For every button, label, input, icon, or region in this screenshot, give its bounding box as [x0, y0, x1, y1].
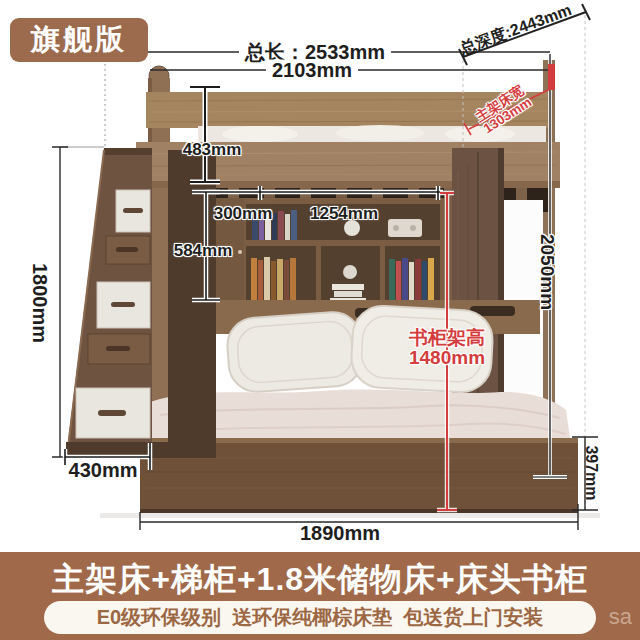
product-image: 总长：2533mm 2103mm 总深度:2443mm 主架床宽 1303mm … — [0, 0, 640, 640]
label-shelf-height: 584mm — [174, 242, 233, 260]
banner-subtitle-pill: E0级环保级别 送环保纯椰棕床垫 包送货上门安装 — [44, 601, 596, 634]
label-stair-height: 1800mm — [29, 263, 50, 343]
dimension-lines — [0, 0, 640, 640]
watermark: sa — [609, 604, 632, 630]
dimline-rail-height — [190, 87, 220, 182]
flagship-badge: 旗舰版 — [10, 18, 148, 62]
label-rail-height: 483mm — [183, 141, 242, 159]
label-frame-height: 2050mm — [537, 234, 557, 310]
label-bookcase-height: 书柜架高 1480mm — [409, 328, 485, 368]
label-base-height: 397mm — [583, 445, 600, 500]
dimline-stair-height — [52, 147, 68, 457]
label-shelf-width: 1254mm — [310, 205, 378, 223]
label-stair-depth: 430mm — [69, 460, 138, 481]
bottom-banner: 主架床+梯柜+1.8米储物床+床头书柜 E0级环保级别 送环保纯椰棕床垫 包送货… — [0, 552, 640, 640]
banner-title: 主架床+梯柜+1.8米储物床+床头书柜 — [0, 558, 640, 602]
label-shelf-left-width: 300mm — [214, 205, 273, 223]
label-bed-length: 1890mm — [300, 523, 380, 544]
label-upper-length: 2103mm — [266, 60, 358, 81]
dimline-shelf-width — [206, 186, 443, 200]
